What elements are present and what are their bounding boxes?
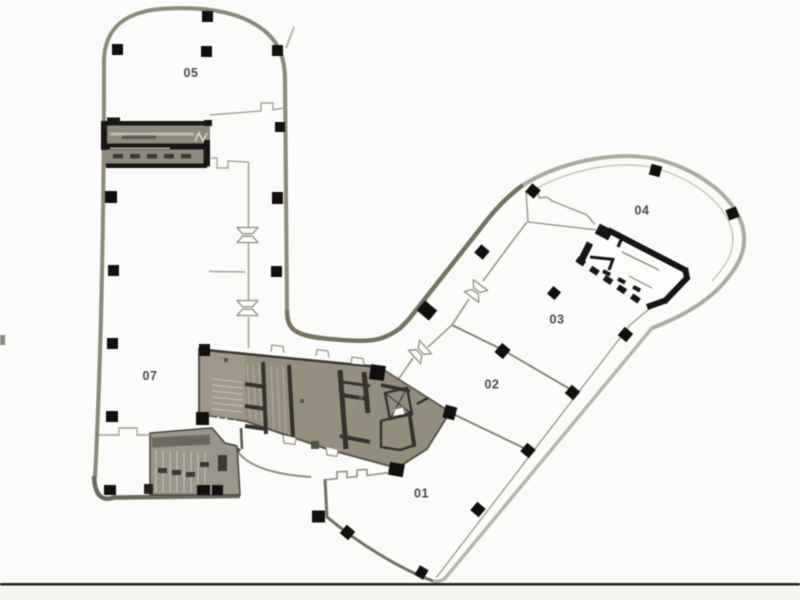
svg-text:05: 05 bbox=[184, 66, 199, 80]
svg-text:02: 02 bbox=[485, 378, 500, 392]
svg-text:01: 01 bbox=[414, 487, 429, 501]
svg-text:07: 07 bbox=[143, 369, 158, 383]
svg-text:03: 03 bbox=[550, 313, 565, 327]
svg-text:04: 04 bbox=[635, 204, 650, 218]
